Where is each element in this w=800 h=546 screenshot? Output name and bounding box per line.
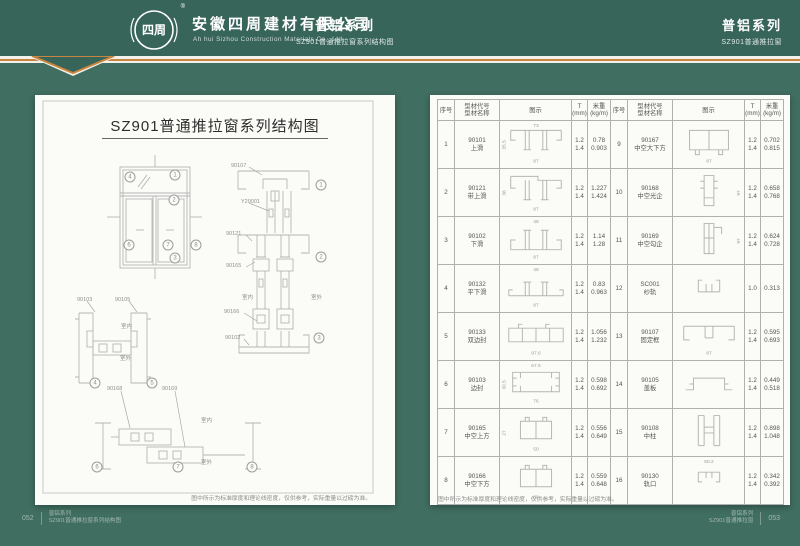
cell-no: 11 bbox=[611, 217, 628, 265]
detail-balloon: 3 bbox=[170, 253, 181, 264]
detail-balloon: 7 bbox=[163, 240, 174, 251]
cell-diagram: 4887 bbox=[500, 217, 572, 265]
svg-text:87: 87 bbox=[706, 158, 712, 164]
cell-thickness: 1.2 1.4 bbox=[745, 361, 761, 409]
col-no: 序号 bbox=[611, 100, 628, 121]
cell-thickness: 1.2 1.4 bbox=[745, 217, 761, 265]
cell-no: 15 bbox=[611, 409, 628, 457]
table-row: 690103 边封67.67630.51.2 1.40.598 0.692149… bbox=[438, 361, 784, 409]
cell-weight: 0.556 0.649 bbox=[588, 409, 611, 457]
cell-weight: 0.83 0.963 bbox=[588, 265, 611, 313]
detail-balloon: 6 bbox=[124, 240, 135, 251]
cell-thickness: 1.2 1.4 bbox=[572, 361, 588, 409]
detail-balloon: 8 bbox=[191, 240, 202, 251]
cell-diagram: 97 bbox=[673, 217, 745, 265]
cell-thickness: 1.0 bbox=[745, 265, 761, 313]
cell-diagram: 97 bbox=[673, 169, 745, 217]
svg-text:50.2: 50.2 bbox=[704, 459, 714, 465]
table-row: 190101 上滑738735.51.2 1.40.78 0.903990167… bbox=[438, 121, 784, 169]
company-logo: 四周 ® bbox=[130, 6, 178, 54]
right-page: 序号型材代号 型材名称图示T (mm)米重 (kg/m)序号型材代号 型材名称图… bbox=[430, 95, 790, 505]
svg-text:87: 87 bbox=[533, 206, 539, 212]
svg-text:97: 97 bbox=[736, 190, 742, 196]
svg-text:97: 97 bbox=[736, 238, 742, 244]
cell-no: 6 bbox=[438, 361, 455, 409]
table-row: 790165 中空上方50271.2 1.40.556 0.6491590108… bbox=[438, 409, 784, 457]
profile-section-icon: 97.6 bbox=[501, 313, 571, 357]
profile-section-icon: 4887 bbox=[501, 265, 571, 309]
footer-divider bbox=[41, 512, 42, 525]
room-side-label: 室外 bbox=[201, 460, 212, 466]
series-subtitle: SZ901普通推拉窗系列结构图 bbox=[280, 37, 410, 47]
cell-weight: 0.702 0.815 bbox=[761, 121, 784, 169]
svg-text:87: 87 bbox=[706, 350, 712, 356]
svg-text:87: 87 bbox=[533, 158, 539, 164]
profile-ref-label: 90121 bbox=[226, 231, 241, 237]
footer-divider bbox=[760, 512, 761, 525]
cell-weight: 0.598 0.692 bbox=[588, 361, 611, 409]
cell-thickness: 1.2 1.4 bbox=[745, 457, 761, 505]
svg-text:48: 48 bbox=[533, 267, 539, 273]
profile-section-icon: 5027 bbox=[501, 409, 571, 453]
cell-code-name: 90169 中空勾企 bbox=[628, 217, 673, 265]
cell-thickness: 1.2 1.4 bbox=[745, 409, 761, 457]
header-chevron bbox=[28, 56, 118, 78]
cell-thickness: 1.2 1.4 bbox=[572, 409, 588, 457]
profile-ref-label: 90102 bbox=[225, 335, 240, 341]
cell-weight: 0.658 0.768 bbox=[761, 169, 784, 217]
profile-section-icon bbox=[674, 265, 744, 309]
cell-weight: 0.313 bbox=[761, 265, 784, 313]
cell-no: 13 bbox=[611, 313, 628, 361]
profile-section-icon bbox=[674, 409, 744, 453]
footer-sub: SZ901普通推拉窗系列结构图 bbox=[49, 518, 121, 525]
cell-weight: 0.342 0.392 bbox=[761, 457, 784, 505]
profile-section-icon: 67.67630.5 bbox=[501, 361, 571, 405]
cell-diagram: 5027 bbox=[500, 409, 572, 457]
svg-text:76: 76 bbox=[533, 398, 539, 404]
cell-weight: 0.898 1.048 bbox=[761, 409, 784, 457]
profile-section-icon: 4887 bbox=[501, 217, 571, 261]
svg-text:27: 27 bbox=[501, 430, 507, 436]
profile-ref-label: Y20001 bbox=[241, 199, 260, 205]
table-row: 590133 双边封97.61.2 1.41.056 1.2321390107 … bbox=[438, 313, 784, 361]
cell-diagram: 738735.5 bbox=[500, 121, 572, 169]
col-diagram: 图示 bbox=[500, 100, 572, 121]
footer-left: 052 普铝系列 SZ901普通推拉窗系列结构图 bbox=[22, 511, 121, 525]
cell-code-name: 90107 固定框 bbox=[628, 313, 673, 361]
cell-weight: 0.624 0.728 bbox=[761, 217, 784, 265]
profile-section-icon bbox=[674, 361, 744, 405]
page-header: 四周 ® 安徽四周建材有限公司 Ah hui Sizhou Constructi… bbox=[0, 0, 800, 56]
cell-weight: 1.227 1.424 bbox=[588, 169, 611, 217]
series-title-right: 普铝系列 bbox=[602, 15, 782, 34]
registered-mark: ® bbox=[181, 4, 185, 10]
detail-balloon: 2 bbox=[316, 252, 327, 263]
cell-code-name: 90108 中柱 bbox=[628, 409, 673, 457]
col-no: 序号 bbox=[438, 100, 455, 121]
cell-no: 7 bbox=[438, 409, 455, 457]
table-row: 290121 带上滑87381.2 1.41.227 1.4241090168 … bbox=[438, 169, 784, 217]
detail-balloon: 4 bbox=[90, 378, 101, 389]
cell-no: 2 bbox=[438, 169, 455, 217]
table-row: 490132 平下滑48871.2 1.40.83 0.96312SC001 纱… bbox=[438, 265, 784, 313]
cell-diagram: 87 bbox=[673, 121, 745, 169]
cell-no: 10 bbox=[611, 169, 628, 217]
col-weight: 米重 (kg/m) bbox=[761, 100, 784, 121]
detail-balloon: 3 bbox=[314, 333, 325, 344]
cell-thickness: 1.2 1.4 bbox=[572, 265, 588, 313]
profile-section-icon: 97 bbox=[674, 217, 744, 261]
page-number-left: 052 bbox=[22, 515, 34, 522]
table-row: 390102 下滑48871.2 1.41.14 1.281190169 中空勾… bbox=[438, 217, 784, 265]
footer-left-text: 普铝系列 SZ901普通推拉窗系列结构图 bbox=[49, 511, 121, 525]
svg-text:38: 38 bbox=[501, 190, 507, 196]
profile-section-icon: 87 bbox=[674, 313, 744, 357]
detail-balloon: 8 bbox=[247, 462, 258, 473]
catalog-spread: 四周 ® 安徽四周建材有限公司 Ah hui Sizhou Constructi… bbox=[0, 0, 800, 546]
cell-code-name: 90121 带上滑 bbox=[455, 169, 500, 217]
col-diagram: 图示 bbox=[673, 100, 745, 121]
svg-text:87: 87 bbox=[533, 302, 539, 308]
cell-code-name: SC001 纱轨 bbox=[628, 265, 673, 313]
profile-section-icon: 738735.5 bbox=[501, 121, 571, 165]
col-t: T (mm) bbox=[572, 100, 588, 121]
footer-series: 普铝系列 bbox=[49, 511, 121, 518]
profile-section-icon: 97 bbox=[674, 169, 744, 213]
drawing-note: 图中所示为标准厚度和理论线密度，仅供参考，实际重量以过磅为准。 bbox=[191, 493, 371, 502]
profile-ref-label: 90168 bbox=[107, 386, 122, 392]
cell-thickness: 1.2 1.4 bbox=[572, 121, 588, 169]
cell-no: 1 bbox=[438, 121, 455, 169]
svg-text:48: 48 bbox=[533, 219, 539, 225]
series-title: 普铝系列 bbox=[280, 15, 410, 34]
detail-balloon: 2 bbox=[169, 195, 180, 206]
detail-balloon: 4 bbox=[125, 172, 136, 183]
table-header-row: 序号型材代号 型材名称图示T (mm)米重 (kg/m)序号型材代号 型材名称图… bbox=[438, 100, 784, 121]
cell-weight: 0.78 0.903 bbox=[588, 121, 611, 169]
profile-ref-label: 90165 bbox=[226, 263, 241, 269]
cell-thickness: 1.2 1.4 bbox=[745, 121, 761, 169]
col-code: 型材代号 型材名称 bbox=[455, 100, 500, 121]
svg-text:87: 87 bbox=[533, 254, 539, 260]
footer-right-text: 普铝系列 SZ901普通推拉窗 bbox=[709, 511, 753, 525]
cell-code-name: 90102 下滑 bbox=[455, 217, 500, 265]
cell-no: 12 bbox=[611, 265, 628, 313]
room-side-label: 室外 bbox=[120, 356, 131, 362]
series-subtitle-right: SZ901普通推拉窗 bbox=[602, 37, 782, 47]
footer-right: 普铝系列 SZ901普通推拉窗 053 bbox=[709, 511, 780, 525]
cell-no: 5 bbox=[438, 313, 455, 361]
profile-section-icon: 87 bbox=[674, 121, 744, 165]
profile-ref-label: 90169 bbox=[162, 386, 177, 392]
header-accent-line bbox=[0, 59, 800, 61]
profile-ref-label: 90166 bbox=[224, 309, 239, 315]
cell-diagram: 87 bbox=[673, 313, 745, 361]
svg-text:67.6: 67.6 bbox=[531, 363, 541, 369]
room-side-label: 室内 bbox=[201, 418, 212, 424]
cell-weight: 0.595 0.693 bbox=[761, 313, 784, 361]
header-right-block: 普铝系列 SZ901普通推拉窗 bbox=[602, 15, 782, 47]
profile-ref-label: 90103 bbox=[77, 297, 92, 303]
col-weight: 米重 (kg/m) bbox=[588, 100, 611, 121]
cell-weight: 1.14 1.28 bbox=[588, 217, 611, 265]
cell-code-name: 90133 双边封 bbox=[455, 313, 500, 361]
cell-diagram bbox=[673, 361, 745, 409]
logo-seal-icon: 四周 bbox=[130, 6, 178, 54]
cell-thickness: 1.2 1.4 bbox=[572, 217, 588, 265]
cell-diagram bbox=[673, 409, 745, 457]
header-center-block: 普铝系列 SZ901普通推拉窗系列结构图 bbox=[280, 15, 410, 47]
room-side-label: 室外 bbox=[311, 295, 322, 301]
cell-diagram bbox=[673, 265, 745, 313]
cell-thickness: 1.2 1.4 bbox=[745, 169, 761, 217]
footer-sub: SZ901普通推拉窗 bbox=[709, 518, 753, 525]
cell-code-name: 90168 中空光企 bbox=[628, 169, 673, 217]
cell-thickness: 1.2 1.4 bbox=[572, 169, 588, 217]
footer-series: 普铝系列 bbox=[709, 511, 753, 518]
detail-balloon: 5 bbox=[147, 378, 158, 389]
profile-ref-label: 90107 bbox=[231, 163, 246, 169]
detail-balloon: 1 bbox=[316, 180, 327, 191]
cell-code-name: 90103 边封 bbox=[455, 361, 500, 409]
cell-weight: 1.056 1.232 bbox=[588, 313, 611, 361]
detail-balloon: 6 bbox=[92, 462, 103, 473]
cell-weight: 0.449 0.518 bbox=[761, 361, 784, 409]
cell-code-name: 90130 轨口 bbox=[628, 457, 673, 505]
cell-diagram: 50.2 bbox=[673, 457, 745, 505]
cell-thickness: 1.2 1.4 bbox=[572, 313, 588, 361]
cell-no: 14 bbox=[611, 361, 628, 409]
detail-balloon: 7 bbox=[173, 462, 184, 473]
cell-diagram: 97.6 bbox=[500, 313, 572, 361]
page-number-right: 053 bbox=[768, 515, 780, 522]
cell-no: 4 bbox=[438, 265, 455, 313]
cell-code-name: 90101 上滑 bbox=[455, 121, 500, 169]
cell-thickness: 1.2 1.4 bbox=[745, 313, 761, 361]
svg-text:35.5: 35.5 bbox=[501, 140, 507, 150]
svg-text:30.5: 30.5 bbox=[501, 380, 507, 390]
svg-text:50: 50 bbox=[533, 446, 539, 452]
room-side-label: 室内 bbox=[242, 295, 253, 301]
cell-code-name: 90105 盖板 bbox=[628, 361, 673, 409]
cell-no: 3 bbox=[438, 217, 455, 265]
cell-diagram: 4887 bbox=[500, 265, 572, 313]
cell-no: 9 bbox=[611, 121, 628, 169]
table-note: 图中所示为标准厚度和理论线密度，仅供参考，实际重量以过磅为准。 bbox=[438, 494, 618, 503]
profile-table: 序号型材代号 型材名称图示T (mm)米重 (kg/m)序号型材代号 型材名称图… bbox=[437, 99, 784, 505]
profile-ref-label: 90105 bbox=[115, 297, 130, 303]
svg-text:97.6: 97.6 bbox=[531, 350, 541, 356]
cell-code-name: 90132 平下滑 bbox=[455, 265, 500, 313]
svg-text:73: 73 bbox=[533, 123, 539, 129]
drawing-title: SZ901普通推拉窗系列结构图 bbox=[35, 115, 395, 136]
cell-code-name: 90167 中空大下方 bbox=[628, 121, 673, 169]
col-code: 型材代号 型材名称 bbox=[628, 100, 673, 121]
room-side-label: 室内 bbox=[121, 324, 132, 330]
left-page: SZ901普通推拉窗系列结构图 图中所示为标准厚度和理论线密度，仅供参考，实际重… bbox=[35, 95, 395, 505]
col-t: T (mm) bbox=[745, 100, 761, 121]
profile-section-icon: 50.2 bbox=[674, 457, 744, 501]
cell-code-name: 90165 中空上方 bbox=[455, 409, 500, 457]
svg-text:四周: 四周 bbox=[142, 23, 166, 37]
cell-diagram: 67.67630.5 bbox=[500, 361, 572, 409]
detail-balloon: 1 bbox=[170, 170, 181, 181]
cell-diagram: 8738 bbox=[500, 169, 572, 217]
profile-section-icon: 8738 bbox=[501, 169, 571, 213]
